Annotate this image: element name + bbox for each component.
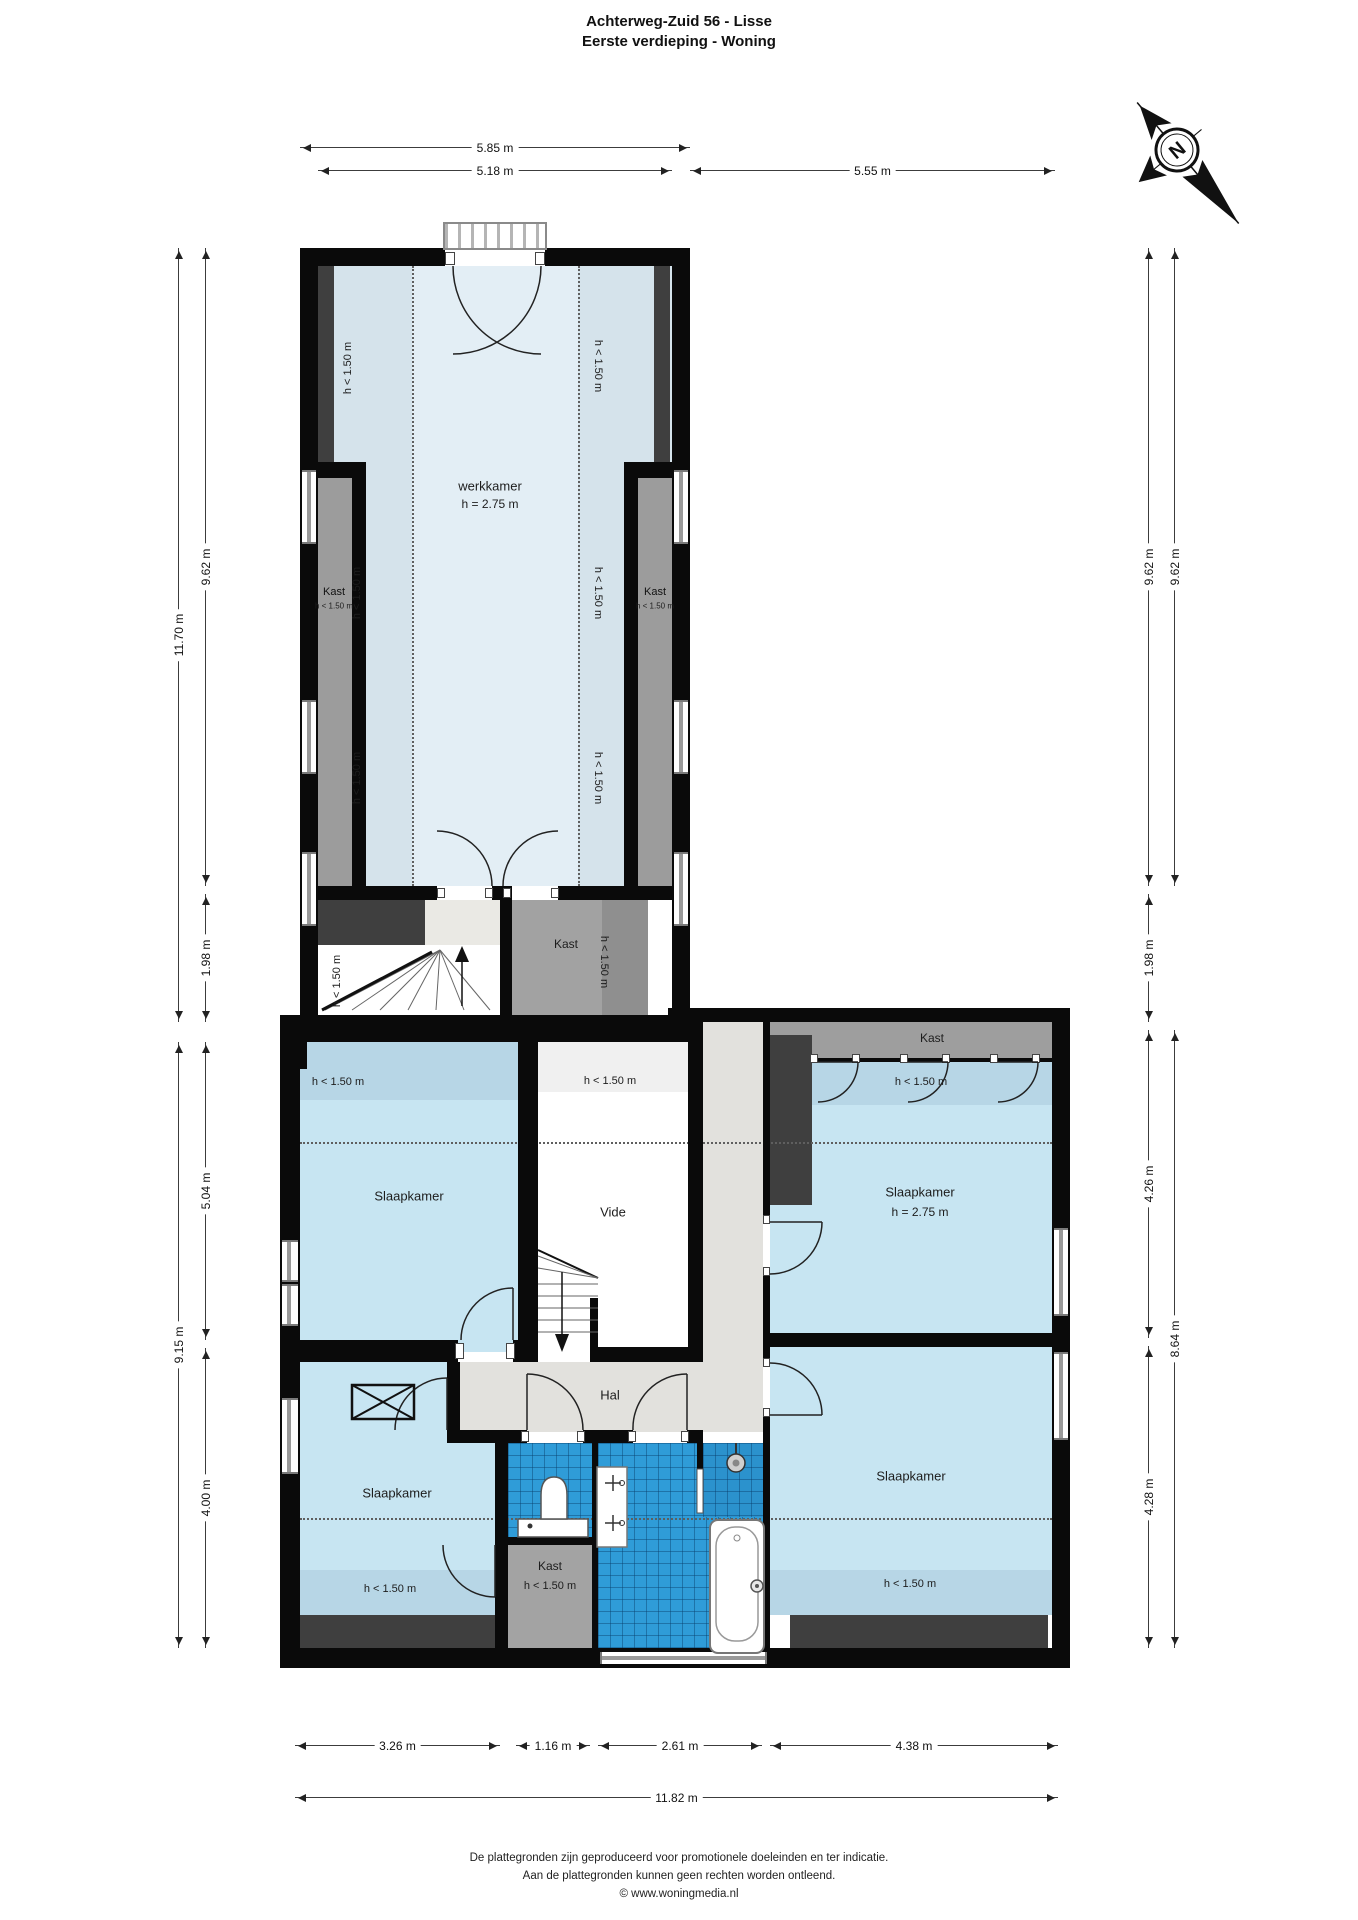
room-label-vide: Vide xyxy=(600,1205,626,1220)
floorplan-page: Achterweg-Zuid 56 - Lisse Eerste verdiep… xyxy=(0,0,1358,1920)
dimension-right-4: 4.26 m xyxy=(1148,1030,1149,1338)
skylight xyxy=(352,1385,414,1419)
door-arc xyxy=(998,1062,1038,1102)
low-height-label: h < 1.50 m xyxy=(331,955,343,1007)
room-label-kast-strip: Kast xyxy=(920,1031,944,1045)
footer-line2: Aan de plattegronden kunnen geen rechten… xyxy=(0,1870,1358,1882)
room-label-hal: Hal xyxy=(600,1388,620,1403)
dimension-left-4: 9.15 m xyxy=(178,1042,179,1648)
footer-line1: De plattegronden zijn geproduceerd voor … xyxy=(0,1852,1358,1864)
dimension-right-2: 9.62 m xyxy=(1174,248,1175,886)
room-label-kast-left: Kast xyxy=(323,586,345,598)
low-height-label: h < 1.50 m xyxy=(592,340,604,392)
dimension-right-3: 1.98 m xyxy=(1148,894,1149,1022)
shower xyxy=(697,1443,745,1513)
low-height-label: h < 1.50 m xyxy=(598,936,610,988)
door-arc xyxy=(437,831,492,886)
door-arc xyxy=(818,1062,858,1102)
dimension-top-2: 5.18 m xyxy=(318,170,672,171)
low-height-label: h < 1.50 m xyxy=(884,1578,936,1590)
dimension-right-5: 4.28 m xyxy=(1148,1346,1149,1648)
dimension-right-1: 9.62 m xyxy=(1148,248,1149,886)
vanity-double-sink xyxy=(597,1467,627,1547)
room-label-slaapkamer-ll: Slaapkamer xyxy=(362,1486,431,1501)
dimension-left-6: 4.00 m xyxy=(205,1348,206,1648)
stairs-vide xyxy=(538,1250,598,1332)
low-height-label: h < 1.50 m xyxy=(342,342,354,394)
door-arc xyxy=(461,1288,513,1340)
dimension-left-1: 11.70 m xyxy=(178,248,179,1022)
low-height-label: h < 1.50 m xyxy=(895,1076,947,1088)
door-arc xyxy=(443,1545,495,1597)
low-height-label: h < 1.50 m xyxy=(351,567,363,619)
room-label-werkkamer-height: h = 2.75 m xyxy=(461,497,518,511)
door-arc xyxy=(770,1222,822,1274)
compass-tail xyxy=(1182,160,1248,232)
dimension-bottom-2: 1.16 m xyxy=(516,1745,590,1746)
dimension-bottom-4: 4.38 m xyxy=(770,1745,1058,1746)
low-height-label: h < 1.50 m xyxy=(524,1580,576,1592)
room-label-kast-mid: Kast xyxy=(538,1559,562,1573)
bathtub xyxy=(710,1520,764,1653)
door-arc xyxy=(453,266,541,354)
room-label-slaapkamer-ur-height: h = 2.75 m xyxy=(891,1205,948,1219)
low-height-label: h < 1.50 m xyxy=(364,1583,416,1595)
door-arcs xyxy=(395,266,1038,1597)
dimension-bottom-3: 2.61 m xyxy=(598,1745,762,1746)
dimension-top-1: 5.85 m xyxy=(300,147,690,148)
low-height-label: h < 1.50 m xyxy=(312,1076,364,1088)
low-height-label: h < 1.50 m xyxy=(315,602,353,611)
footer-line3: © www.woningmedia.nl xyxy=(0,1888,1358,1900)
dimension-bottom-total: 11.82 m xyxy=(295,1797,1058,1798)
room-label-kast-right: Kast xyxy=(644,586,666,598)
door-arc xyxy=(527,1374,583,1430)
low-height-label: h < 1.50 m xyxy=(584,1075,636,1087)
room-label-werkkamer: werkkamer xyxy=(458,479,522,494)
door-arc xyxy=(453,266,541,354)
room-label-slaapkamer-ur: Slaapkamer xyxy=(885,1185,954,1200)
toilet xyxy=(518,1477,588,1537)
room-label-kast-landing: Kast xyxy=(554,937,578,951)
room-label-slaapkamer-lr: Slaapkamer xyxy=(876,1469,945,1484)
stairs-wing-arrow xyxy=(455,946,469,1006)
room-label-slaapkamer-ul: Slaapkamer xyxy=(374,1189,443,1204)
door-arc xyxy=(633,1374,687,1430)
dimension-right-6: 8.64 m xyxy=(1174,1030,1175,1648)
faucet-dot xyxy=(528,1524,533,1529)
dimension-bottom-1: 3.26 m xyxy=(295,1745,500,1746)
door-arc xyxy=(503,831,558,886)
dimension-left-3: 1.98 m xyxy=(205,894,206,1022)
door-arc xyxy=(770,1363,822,1415)
dimension-top-3: 5.55 m xyxy=(690,170,1055,171)
low-height-label: h < 1.50 m xyxy=(592,752,604,804)
low-height-label: h < 1.50 m xyxy=(592,567,604,619)
dimension-left-2: 9.62 m xyxy=(205,248,206,886)
compass: N xyxy=(1099,82,1263,256)
dimension-left-5: 5.04 m xyxy=(205,1042,206,1340)
low-height-label: h < 1.50 m xyxy=(636,602,674,611)
low-height-label: h < 1.50 m xyxy=(351,752,363,804)
